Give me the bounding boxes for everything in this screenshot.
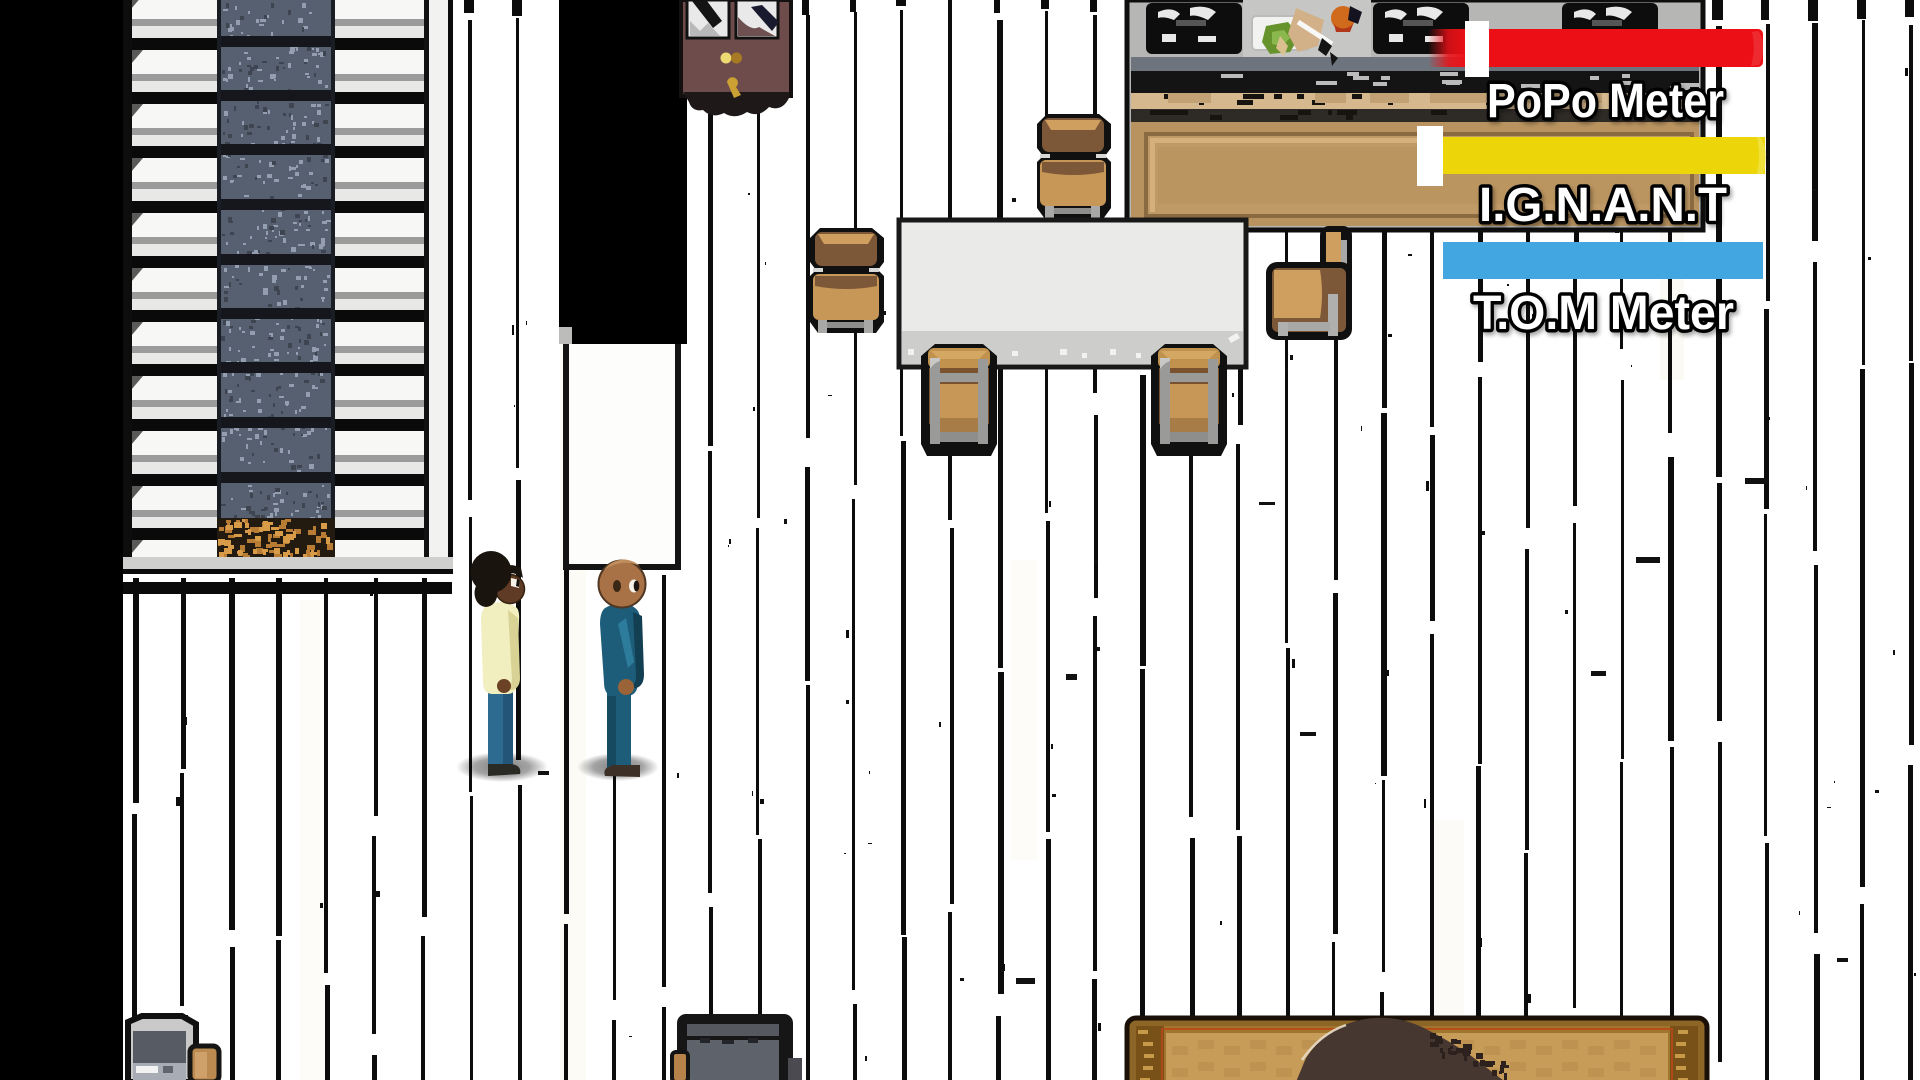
svg-text:T.O.M Meter: T.O.M Meter: [1473, 287, 1734, 340]
svg-text:PoPo Meter: PoPo Meter: [1487, 75, 1724, 128]
svg-text:I.G.N.A.N.T: I.G.N.A.N.T: [1479, 179, 1727, 232]
